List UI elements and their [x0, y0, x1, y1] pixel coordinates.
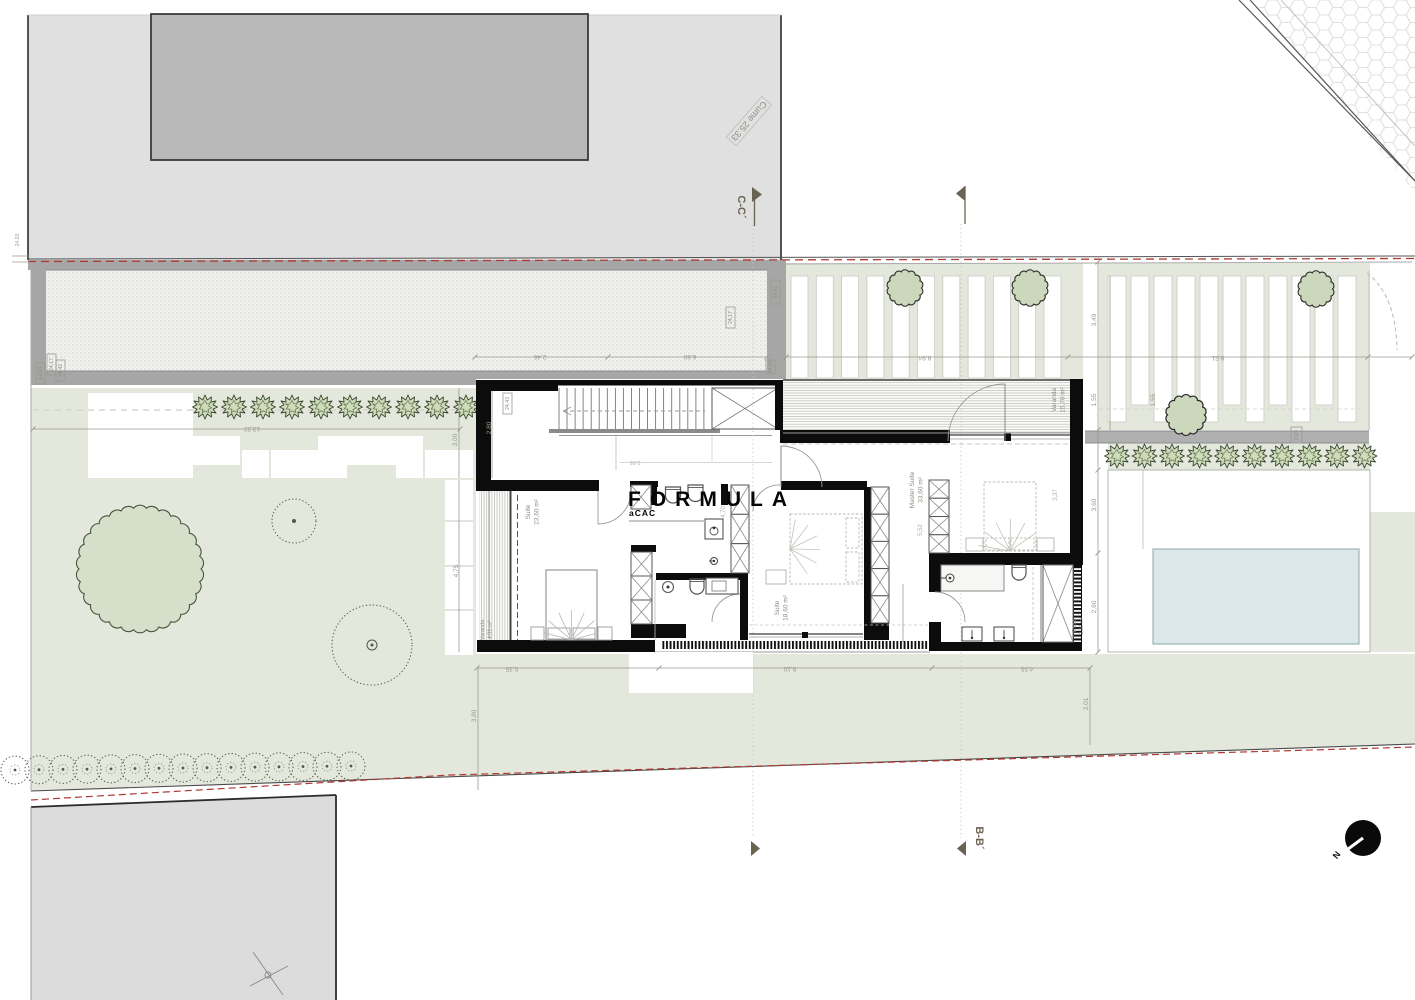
- svg-text:Suite: Suite: [525, 504, 532, 519]
- svg-text:24,17: 24,17: [49, 358, 55, 371]
- svg-text:23,60 m²: 23,60 m²: [534, 498, 541, 524]
- svg-text:18,60 m²: 18,60 m²: [783, 594, 790, 620]
- svg-text:8,51: 8,51: [1211, 354, 1224, 361]
- svg-text:24,20: 24,20: [768, 360, 774, 373]
- svg-text:6,60: 6,60: [683, 353, 696, 360]
- svg-text:B-B´: B-B´: [973, 826, 985, 850]
- svg-text:2,32 m²: 2,32 m²: [1079, 617, 1085, 634]
- svg-text:3,49: 3,49: [1091, 313, 1098, 326]
- svg-text:Rupa: Rupa: [1072, 620, 1078, 632]
- svg-text:4,75: 4,75: [453, 564, 460, 577]
- svg-text:24,42: 24,42: [58, 364, 64, 377]
- svg-text:aCAC: aCAC: [629, 508, 656, 518]
- svg-text:3,37: 3,37: [1053, 489, 1059, 501]
- svg-text:5,35: 5,35: [505, 665, 518, 672]
- svg-text:1,55: 1,55: [1091, 393, 1098, 406]
- svg-text:Varanda: Varanda: [1051, 388, 1058, 412]
- svg-text:24,17: 24,17: [728, 311, 734, 324]
- svg-text:4,55: 4,55: [1020, 665, 1033, 672]
- svg-text:Master Suite: Master Suite: [909, 471, 916, 508]
- svg-text:2,80: 2,80: [486, 421, 493, 434]
- svg-text:2,46: 2,46: [533, 353, 546, 360]
- svg-text:15,70 m²: 15,70 m²: [1060, 386, 1067, 412]
- svg-text:24,43: 24,43: [505, 397, 511, 410]
- svg-text:2,60: 2,60: [1091, 600, 1098, 613]
- svg-text:Suite: Suite: [774, 600, 781, 615]
- svg-text:3,01: 3,01: [1083, 697, 1090, 710]
- svg-text:8,94: 8,94: [918, 354, 931, 361]
- svg-text:1,55: 1,55: [1150, 393, 1157, 406]
- svg-text:3,60: 3,60: [1091, 498, 1098, 511]
- svg-text:3,80: 3,80: [471, 709, 478, 722]
- svg-text:4,31 m²: 4,31 m²: [488, 621, 494, 640]
- svg-text:3,00: 3,00: [452, 433, 459, 446]
- svg-text:5,52: 5,52: [918, 524, 924, 536]
- svg-text:8,10: 8,10: [783, 665, 796, 672]
- svg-text:33,60 m²: 33,60 m²: [918, 476, 925, 502]
- svg-text:13,32: 13,32: [243, 425, 260, 432]
- svg-text:Varanda: Varanda: [480, 619, 486, 640]
- svg-text:C-C´: C-C´: [735, 195, 747, 219]
- svg-text:24,01: 24,01: [773, 285, 779, 298]
- svg-text:2,19: 2,19: [1294, 430, 1300, 440]
- svg-text:24.03: 24.03: [15, 234, 21, 247]
- svg-text:24,03: 24,03: [38, 367, 44, 380]
- svg-text:0,66: 0,66: [630, 459, 641, 465]
